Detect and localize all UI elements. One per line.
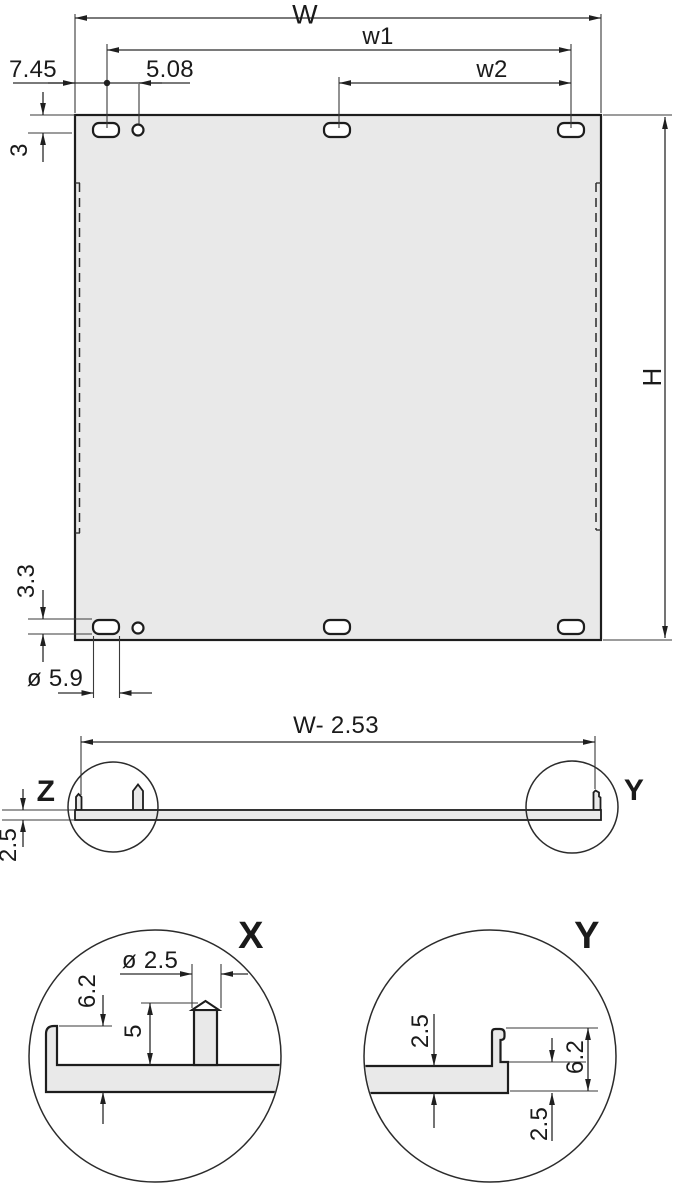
dim-detail-y-thickness-label: 2.5 xyxy=(409,1014,433,1048)
dimension-origin-dot xyxy=(104,80,110,86)
dim-bottom-inset-label: 3.3 xyxy=(15,564,39,598)
dim-pin-height xyxy=(141,1003,198,1065)
profile-view xyxy=(2,736,618,853)
mounting-slot-bottom-left xyxy=(93,620,119,634)
dim-slot-width-label: ø 5.9 xyxy=(27,667,83,691)
dim-pin-height-label: 5 xyxy=(122,1024,146,1038)
detail-x-title: X xyxy=(238,917,264,955)
mounting-slot-bottom-right xyxy=(558,620,584,634)
front-view xyxy=(13,14,672,698)
panel-technical-drawing: W w1 w2 7.45 5.08 3 3.3 ø 5.9 H W- 2.53 … xyxy=(0,0,675,1192)
dim-top-inset-label: 3 xyxy=(8,143,32,157)
profile-plate xyxy=(75,810,601,820)
detail-x-pin-body xyxy=(194,1010,217,1065)
dim-detail-y-height-label: 6.2 xyxy=(564,1040,588,1074)
dim-detail-x-height-label: 6.2 xyxy=(76,974,100,1008)
mounting-slot-top-left xyxy=(93,123,119,137)
dim-profile-thickness-label: 2.5 xyxy=(0,828,21,862)
detail-x-plate-profile xyxy=(46,1026,295,1092)
dim-edge-offset-label: 7.45 xyxy=(9,58,57,82)
dim-top-inset xyxy=(28,92,75,162)
detail-marker-z-label: Z xyxy=(37,777,56,807)
panel-outline xyxy=(75,115,601,640)
detail-y-title: Y xyxy=(574,917,600,955)
dim-w-label: W xyxy=(292,2,318,29)
profile-alignment-pin xyxy=(133,785,143,811)
profile-right-lip xyxy=(594,791,601,811)
dim-height-label: H xyxy=(639,367,665,386)
dim-w1-label: w1 xyxy=(362,25,393,49)
mounting-slot-top-middle xyxy=(324,123,350,137)
pin-hole-bottom xyxy=(133,623,144,634)
detail-marker-y-label: Y xyxy=(624,776,644,806)
drawing-linework xyxy=(0,0,675,1192)
detail-bubble-y xyxy=(526,761,618,853)
dim-pin-diameter-label: ø 2.5 xyxy=(122,949,178,973)
dim-hole-offset-label: 5.08 xyxy=(146,58,194,82)
dim-detail-x-height xyxy=(59,995,112,1124)
dim-detail-y-lip-offset-label: 2.5 xyxy=(528,1107,552,1141)
detail-x-pin-tip xyxy=(192,1001,219,1010)
profile-left-lip xyxy=(76,794,82,810)
pin-hole-top xyxy=(133,125,144,136)
dim-w2-label: w2 xyxy=(476,58,507,82)
mounting-slot-bottom-middle xyxy=(324,620,350,634)
dim-profile-width-label: W- 2.53 xyxy=(293,714,379,738)
dim-profile-width xyxy=(81,736,595,795)
